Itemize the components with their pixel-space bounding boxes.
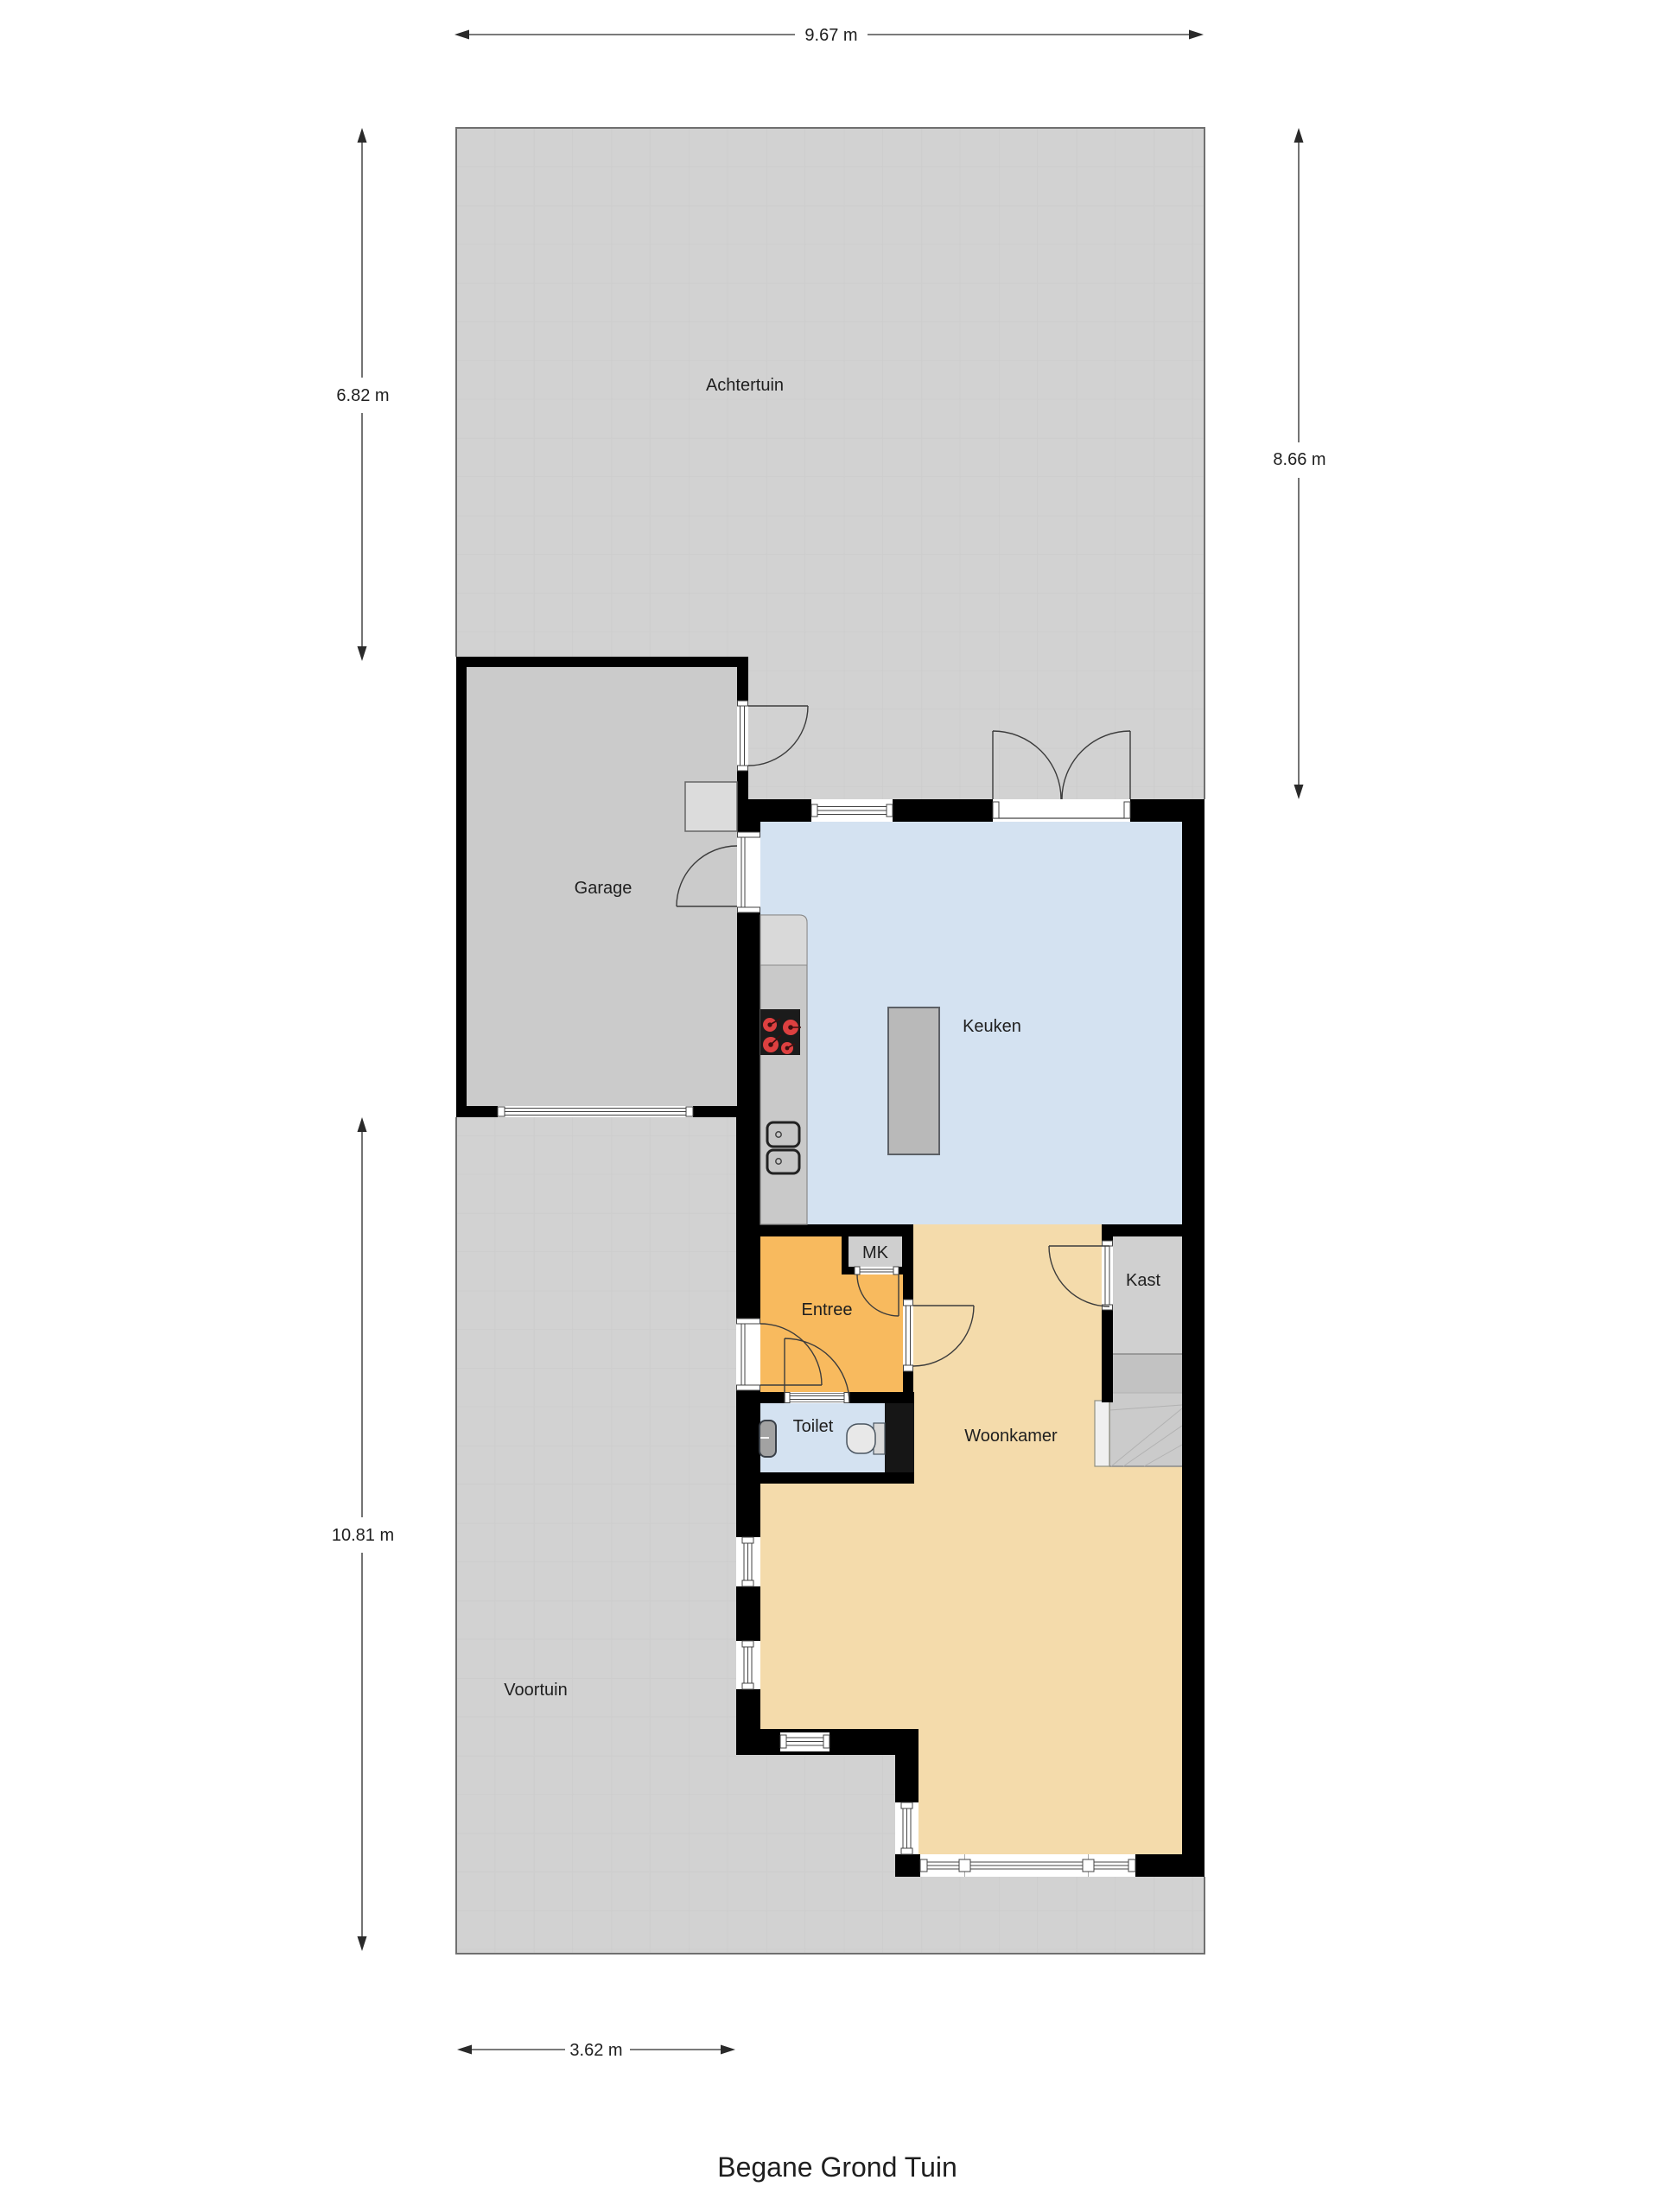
svg-text:3.62 m: 3.62 m: [569, 2041, 622, 2060]
svg-text:Woonkamer: Woonkamer: [964, 1427, 1058, 1446]
svg-text:Voortuin: Voortuin: [504, 1681, 567, 1700]
svg-text:8.66 m: 8.66 m: [1273, 450, 1325, 469]
svg-text:Entree: Entree: [802, 1300, 853, 1319]
svg-text:9.67 m: 9.67 m: [804, 26, 857, 45]
svg-text:Keuken: Keuken: [963, 1017, 1021, 1036]
svg-text:Garage: Garage: [575, 879, 632, 898]
svg-text:Begane Grond Tuin: Begane Grond Tuin: [717, 2152, 957, 2183]
svg-text:MK: MK: [862, 1243, 889, 1262]
svg-text:6.82 m: 6.82 m: [336, 386, 389, 405]
svg-text:Kast: Kast: [1126, 1271, 1160, 1290]
svg-text:Achtertuin: Achtertuin: [706, 376, 784, 395]
svg-text:Toilet: Toilet: [793, 1417, 834, 1436]
svg-text:10.81 m: 10.81 m: [332, 1526, 394, 1545]
